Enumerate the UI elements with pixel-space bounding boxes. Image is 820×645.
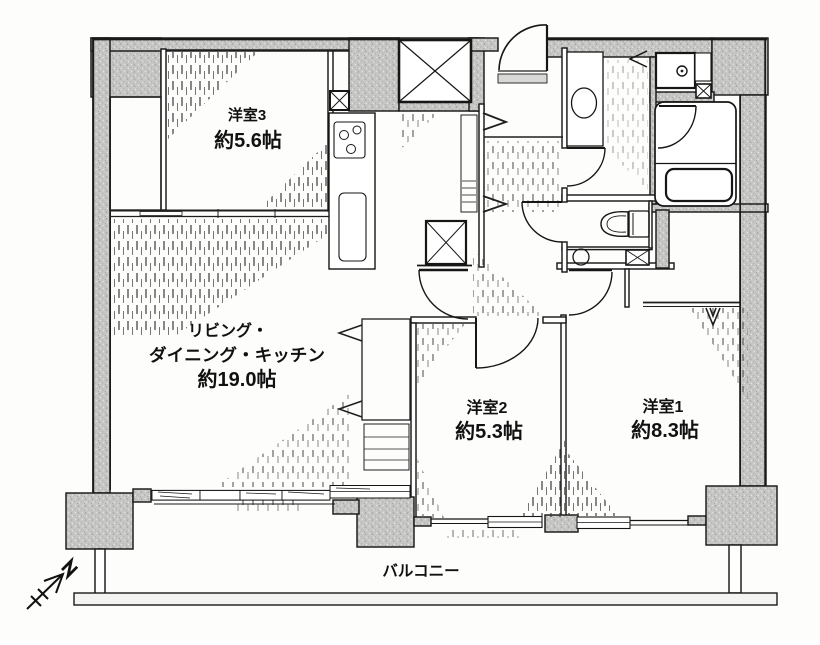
svg-text:約5.3帖: 約5.3帖 [455, 419, 523, 443]
svg-text:約19.0帖: 約19.0帖 [198, 367, 277, 391]
svg-text:洋室3: 洋室3 [228, 106, 266, 124]
svg-text:ダイニング・キッチン: ダイニング・キッチン [149, 345, 325, 365]
svg-text:リビング・: リビング・ [188, 321, 268, 340]
svg-text:約8.3帖: 約8.3帖 [631, 418, 699, 442]
svg-text:洋室2: 洋室2 [467, 398, 508, 417]
svg-text:洋室1: 洋室1 [643, 397, 684, 416]
svg-text:バルコニー: バルコニー [382, 562, 459, 580]
svg-text:約5.6帖: 約5.6帖 [214, 128, 282, 152]
